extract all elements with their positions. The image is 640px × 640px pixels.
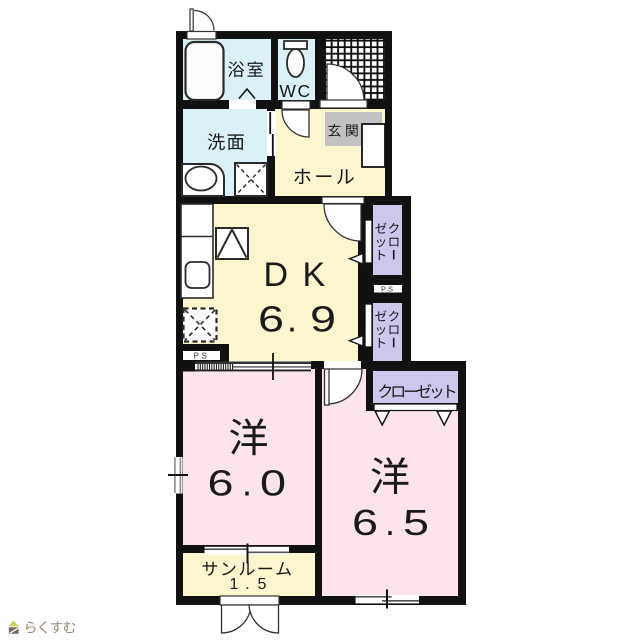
svg-text:6: 6	[258, 299, 284, 340]
svg-text:5: 5	[258, 576, 267, 593]
svg-text:.: .	[385, 502, 395, 543]
svg-text:.: .	[242, 463, 252, 504]
svg-text:5: 5	[403, 502, 429, 543]
svg-text:PS: PS	[194, 352, 210, 361]
svg-text:.: .	[245, 576, 249, 593]
svg-text:.: .	[287, 299, 297, 340]
svg-text:D: D	[264, 256, 289, 294]
svg-text:WC: WC	[279, 81, 311, 101]
svg-text:0: 0	[260, 463, 286, 504]
svg-text:6: 6	[207, 463, 233, 504]
svg-text:K: K	[302, 256, 325, 294]
svg-text:9: 9	[310, 299, 336, 340]
svg-text:PS: PS	[381, 284, 395, 293]
svg-text:1: 1	[230, 576, 239, 593]
svg-text:6: 6	[352, 502, 378, 543]
